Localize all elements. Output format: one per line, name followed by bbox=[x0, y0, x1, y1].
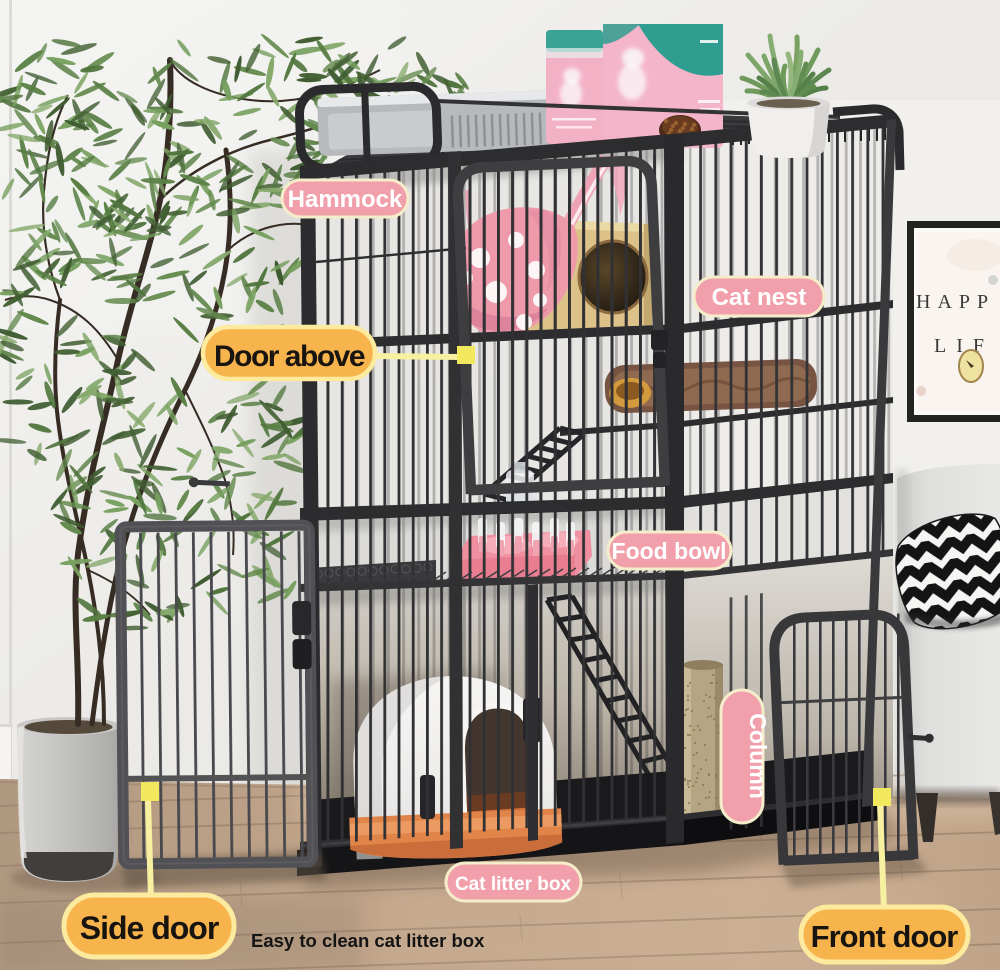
svg-text:Front door: Front door bbox=[811, 919, 959, 954]
svg-text:Food bowl: Food bowl bbox=[612, 538, 727, 564]
svg-text:HAPP: HAPP bbox=[916, 291, 995, 313]
svg-text:Cat nest: Cat nest bbox=[712, 284, 807, 311]
svg-text:Cat litter box: Cat litter box bbox=[455, 874, 572, 895]
svg-text:Hammock: Hammock bbox=[288, 186, 403, 213]
svg-text:Door above: Door above bbox=[214, 340, 365, 373]
svg-text:Easy to clean cat litter box: Easy to clean cat litter box bbox=[251, 930, 485, 951]
svg-text:Column: Column bbox=[745, 713, 771, 799]
svg-text:Side door: Side door bbox=[80, 910, 219, 946]
